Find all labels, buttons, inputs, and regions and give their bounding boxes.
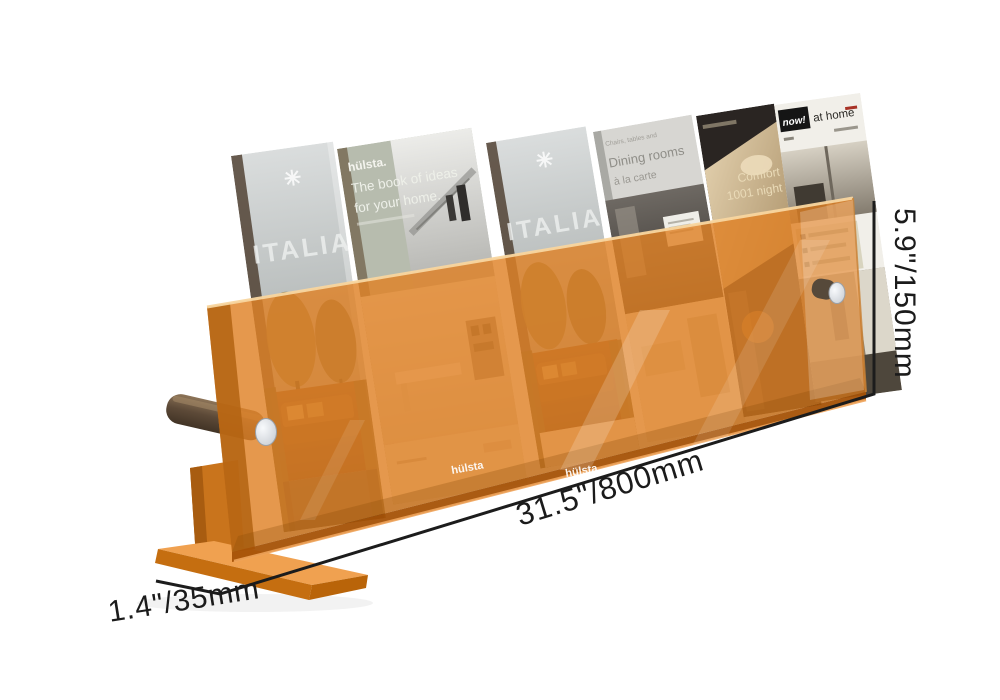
left-rod-cap xyxy=(256,419,277,446)
product-image-canvas: ITALIAN ST hülsta. The book of ideas for… xyxy=(0,0,1000,700)
right-pin-cap xyxy=(829,283,845,304)
height-dimension-label: 5.9"/150mm xyxy=(887,208,921,379)
